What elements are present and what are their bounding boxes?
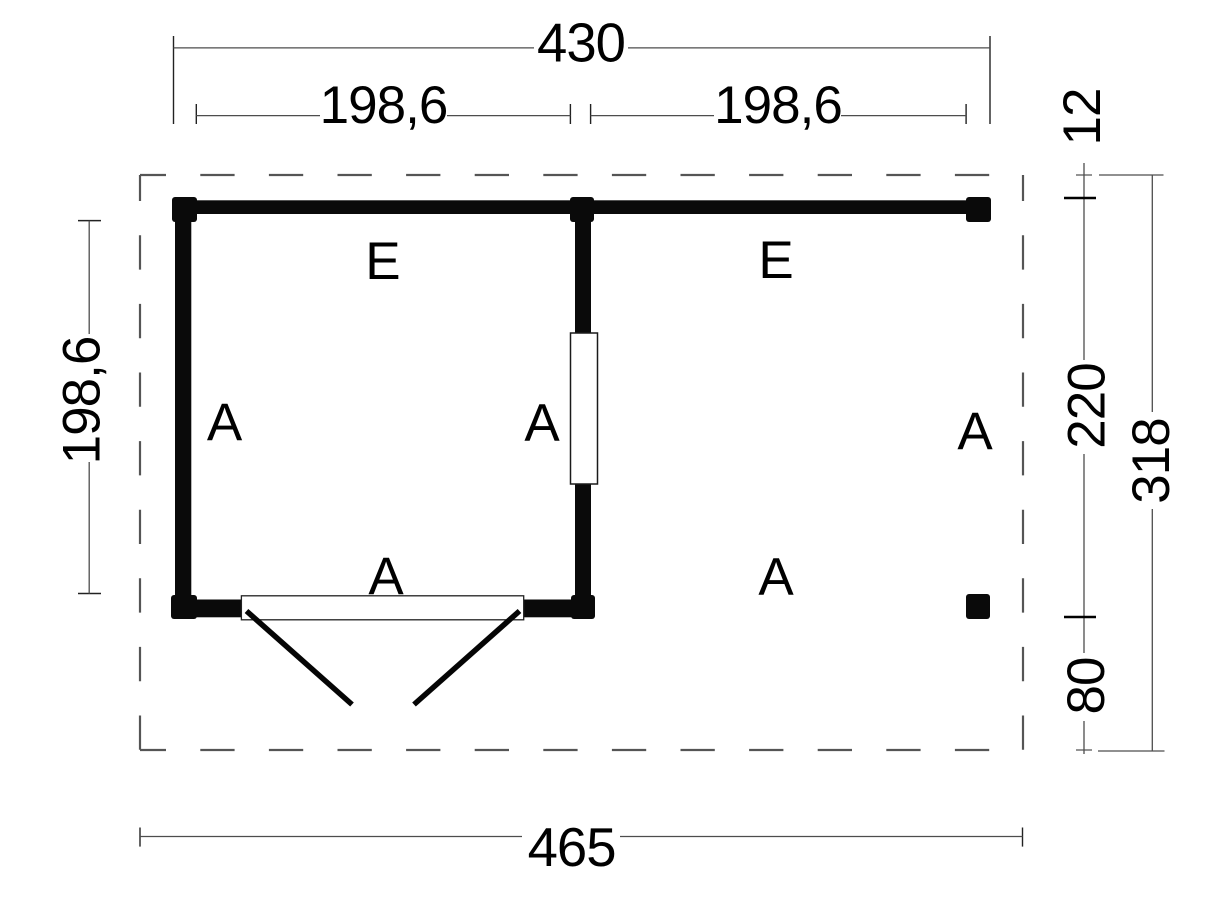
- svg-text:198,6: 198,6: [53, 337, 112, 465]
- svg-text:430: 430: [537, 13, 625, 74]
- svg-text:220: 220: [1058, 363, 1117, 448]
- svg-text:12: 12: [1053, 89, 1112, 146]
- svg-text:A: A: [758, 548, 794, 607]
- svg-text:465: 465: [528, 817, 616, 878]
- svg-text:A: A: [207, 393, 243, 452]
- svg-text:198,6: 198,6: [714, 76, 842, 135]
- svg-text:80: 80: [1057, 658, 1116, 715]
- svg-text:198,6: 198,6: [320, 76, 448, 135]
- svg-text:A: A: [368, 547, 404, 606]
- svg-text:318: 318: [1122, 418, 1181, 503]
- svg-text:A: A: [524, 394, 560, 453]
- svg-text:E: E: [758, 231, 793, 290]
- svg-text:A: A: [957, 402, 993, 461]
- svg-text:E: E: [365, 232, 400, 291]
